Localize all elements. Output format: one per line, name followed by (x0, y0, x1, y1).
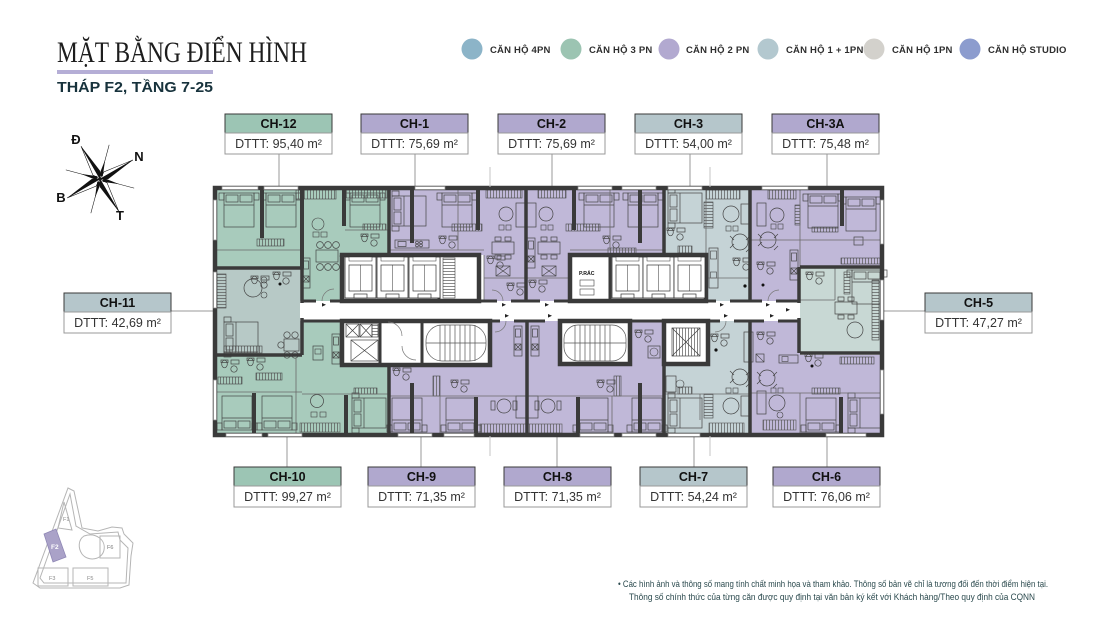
svg-text:CH-11: CH-11 (100, 296, 135, 310)
svg-text:F5: F5 (87, 576, 93, 582)
svg-text:P.RÁC: P.RÁC (579, 270, 595, 277)
svg-text:CH-12: CH-12 (260, 117, 296, 131)
svg-text:DTTT: 47,27 m²: DTTT: 47,27 m² (935, 316, 1022, 330)
svg-text:CH-9: CH-9 (407, 470, 436, 484)
svg-text:CĂN HỘ STUDIO: CĂN HỘ STUDIO (988, 44, 1067, 56)
svg-text:F1: F1 (63, 517, 69, 523)
svg-text:B: B (56, 190, 65, 205)
svg-text:CH-2: CH-2 (537, 117, 566, 131)
svg-text:Thông số chính thức của từng c: Thông số chính thức của từng căn được qu… (629, 591, 1035, 602)
svg-text:CH-10: CH-10 (269, 470, 305, 484)
svg-text:DTTT: 75,69 m²: DTTT: 75,69 m² (371, 137, 458, 151)
svg-text:DTTT: 75,48 m²: DTTT: 75,48 m² (782, 137, 869, 151)
svg-text:F6: F6 (107, 545, 113, 551)
svg-text:DTTT: 99,27 m²: DTTT: 99,27 m² (244, 490, 331, 504)
svg-text:CH-3: CH-3 (674, 117, 703, 131)
svg-text:DTTT: 75,69 m²: DTTT: 75,69 m² (508, 137, 595, 151)
svg-text:N: N (134, 149, 143, 164)
svg-text:F3: F3 (49, 576, 55, 582)
svg-text:F2: F2 (51, 544, 59, 551)
svg-text:DTTT: 76,06 m²: DTTT: 76,06 m² (783, 490, 870, 504)
svg-text:DTTT: 71,35 m²: DTTT: 71,35 m² (514, 490, 601, 504)
svg-text:DTTT: 54,24 m²: DTTT: 54,24 m² (650, 490, 737, 504)
svg-text:CH-3A: CH-3A (806, 117, 844, 131)
svg-text:• Các hình ảnh và thông số man: • Các hình ảnh và thông số mang tính chấ… (618, 578, 1048, 589)
svg-text:DTTT: 54,00 m²: DTTT: 54,00 m² (645, 137, 732, 151)
svg-text:CH-8: CH-8 (543, 470, 572, 484)
svg-text:DTTT: 71,35 m²: DTTT: 71,35 m² (378, 490, 465, 504)
svg-text:CH-7: CH-7 (679, 470, 708, 484)
svg-text:CH-6: CH-6 (812, 470, 841, 484)
svg-text:CĂN HỘ 3 PN: CĂN HỘ 3 PN (589, 44, 652, 56)
svg-text:T: T (116, 208, 124, 223)
svg-text:Đ: Đ (71, 132, 80, 147)
svg-text:DTTT: 95,40 m²: DTTT: 95,40 m² (235, 137, 322, 151)
svg-text:CĂN HỘ 1PN: CĂN HỘ 1PN (892, 44, 953, 56)
svg-text:CĂN HỘ 4PN: CĂN HỘ 4PN (490, 44, 551, 56)
svg-text:CĂN HỘ 2 PN: CĂN HỘ 2 PN (686, 44, 749, 56)
svg-text:CĂN HỘ 1 + 1PN: CĂN HỘ 1 + 1PN (786, 44, 864, 56)
svg-text:DTTT: 42,69 m²: DTTT: 42,69 m² (74, 316, 161, 330)
svg-text:CH-5: CH-5 (964, 296, 993, 310)
svg-text:CH-1: CH-1 (400, 117, 429, 131)
svg-text:MẶT BẰNG ĐIỂN HÌNH: MẶT BẰNG ĐIỂN HÌNH (57, 35, 307, 69)
svg-text:THÁP F2, TẦNG 7-25: THÁP F2, TẦNG 7-25 (57, 79, 213, 96)
